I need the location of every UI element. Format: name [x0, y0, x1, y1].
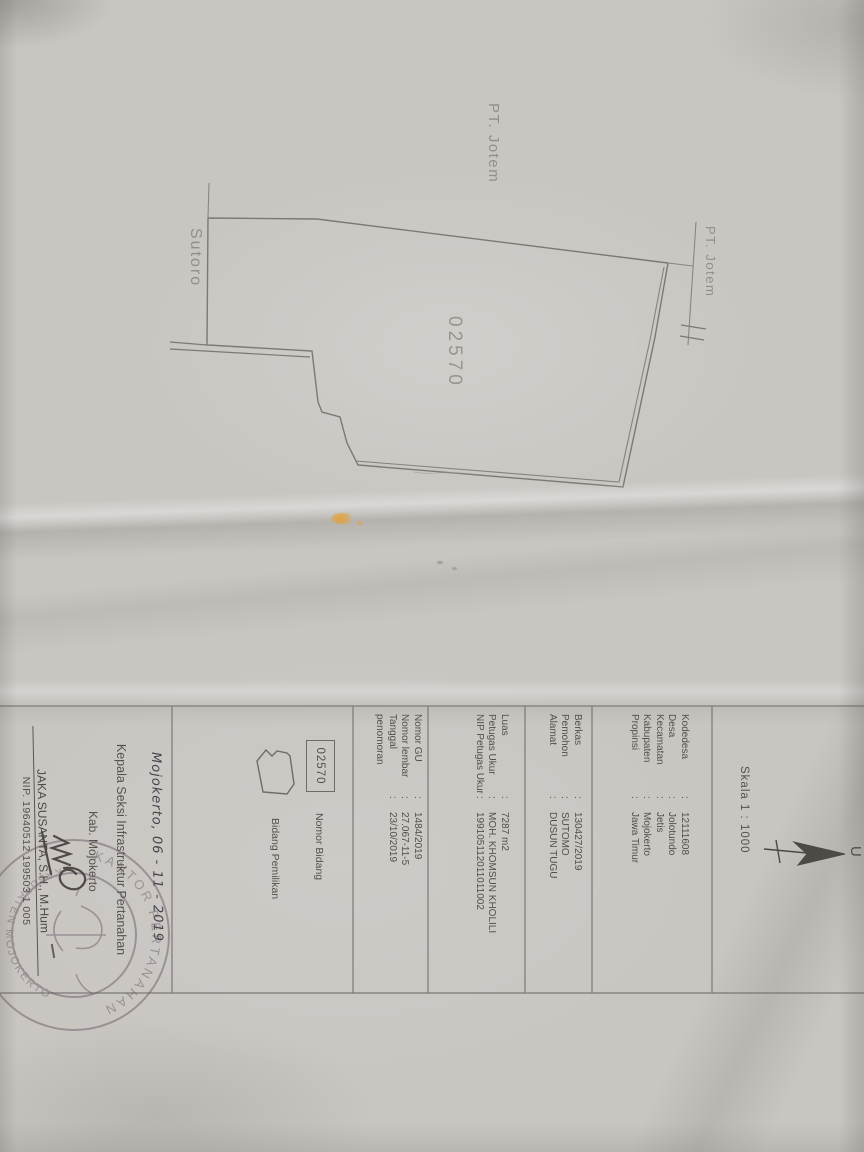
field-label: Nomor GU [411, 714, 424, 796]
field-label: Luas [498, 714, 511, 796]
field-colon: : [386, 796, 399, 812]
field-value: DUSUN TUGU [546, 812, 559, 993]
field-value: 130427/2019 [571, 812, 584, 993]
legend-nomor-bidang-label: Nomor Bidang [313, 813, 325, 880]
field-label: Petugas Ukur [485, 714, 498, 796]
field-value: Jetis [653, 812, 666, 993]
field-label: NIP Petugas Ukur [473, 714, 486, 796]
field-row-nomor-gu: Nomor GU : 1484/2019 [411, 706, 424, 993]
field-label: Kecamatan [653, 714, 666, 796]
scale-label: Skala 1 : 1000 [738, 766, 750, 854]
field-colon: : [665, 796, 678, 812]
field-value: MOH. KHOMSUN KHOLILI [485, 812, 498, 993]
stamp-text-top: KANTOR PERTANAHAN [92, 848, 164, 1019]
field-value: Jolotundo [665, 812, 678, 993]
legend-bidang-pemilikan-label: Bidang Pemilikan [269, 818, 281, 899]
field-label: Kodedesa [678, 714, 691, 796]
field-row-luas: Luas : 7287 m2 [498, 706, 511, 993]
field-colon: : [498, 796, 511, 812]
field-row-propinsi: Propinsi : Jawa Timur [628, 706, 641, 993]
field-row-alamat: Alamat : DUSUN TUGU [546, 706, 559, 993]
field-row-desa: Desa : Jolotundo [665, 706, 678, 993]
field-colon: : [640, 796, 653, 812]
block-scale-north: U Skala 1 : 1000 [712, 706, 864, 993]
field-colon: : [558, 796, 571, 812]
field-value: 1484/2019 [411, 812, 424, 993]
field-row-tanggal-penomoran: Tanggal penomoran : 23/10/2019 [373, 706, 398, 993]
block-numbering: Nomor GU : 1484/2019 Nomor lembar : 27.0… [348, 706, 428, 993]
legend-parcel-icon [252, 742, 297, 800]
field-label: Tanggal penomoran [373, 714, 398, 796]
field-colon: : [485, 796, 498, 812]
field-label: Nomor lembar [398, 714, 411, 796]
field-row-nomor-lembar: Nomor lembar : 27.067-11-5 [398, 706, 411, 993]
field-colon: : [653, 796, 666, 812]
field-colon: : [678, 796, 691, 812]
field-row-petugas-ukur: Petugas Ukur : MOH. KHOMSUN KHOLILI [485, 706, 498, 993]
orange-ink-dot [357, 521, 362, 525]
land-parcel-map-document: PT. Jotem PT. Jotem Sutoro 02570 U Skala… [0, 0, 864, 1152]
legend-parcel-number: 02570 [315, 748, 327, 785]
block-legend: 02570 Nomor Bidang Bidang Pemilikan [172, 706, 353, 993]
block-signature: Mojokerto, 06 - 11 - 2019 Kepala Seksi I… [0, 706, 172, 993]
field-label: Propinsi [628, 714, 641, 796]
field-value: 23/10/2019 [386, 812, 399, 993]
field-value: 12111608 [678, 812, 691, 993]
gray-speck [437, 561, 443, 564]
field-label: Alamat [546, 714, 559, 796]
field-value: 27.067-11-5 [398, 812, 411, 993]
field-value: 7287 m2 [498, 812, 511, 993]
field-row-kodedesa: Kodedesa : 12111608 [678, 706, 691, 993]
field-label: Kabupaten [640, 714, 653, 796]
field-value: Jawa Timur [628, 812, 641, 993]
field-colon: : [398, 796, 411, 812]
field-row-berkas: Berkas : 130427/2019 [571, 706, 584, 993]
legend-number-box: 02570 [306, 740, 335, 792]
field-colon: : [628, 796, 641, 812]
field-colon: : [411, 796, 424, 812]
block-survey: Luas : 7287 m2 Petugas Ukur : MOH. KHOMS… [413, 706, 525, 993]
field-label: Berkas [571, 714, 584, 796]
field-row-nip-petugas: NIP Petugas Ukur : 199105112011011002 [473, 706, 486, 993]
svg-text:KANTOR PERTANAHAN: KANTOR PERTANAHAN [92, 848, 164, 1019]
field-row-kabupaten: Kabupaten : Mojokerto [640, 706, 653, 993]
gray-speck [452, 567, 457, 570]
block-application: Berkas : 130427/2019 Pemohon : SUTOMO Al… [516, 706, 592, 993]
field-row-pemohon: Pemohon : SUTOMO [558, 706, 571, 993]
field-label: Pemohon [558, 714, 571, 796]
scanned-document-photo: PT. Jotem PT. Jotem Sutoro 02570 U Skala… [0, 0, 864, 1152]
field-label: Desa [665, 714, 678, 796]
field-colon: : [473, 796, 486, 812]
field-colon: : [571, 796, 584, 812]
field-value: SUTOMO [558, 812, 571, 993]
field-colon: : [546, 796, 559, 812]
north-arrow-icon [758, 832, 848, 878]
north-letter: U [847, 846, 864, 857]
orange-ink-smudge [331, 513, 354, 524]
field-row-kecamatan: Kecamatan : Jetis [653, 706, 666, 993]
signer-nip: NIP. 19640512 199503 1 005 [20, 726, 32, 976]
field-value: 199105112011011002 [473, 812, 486, 993]
field-value: Mojokerto [640, 812, 653, 993]
